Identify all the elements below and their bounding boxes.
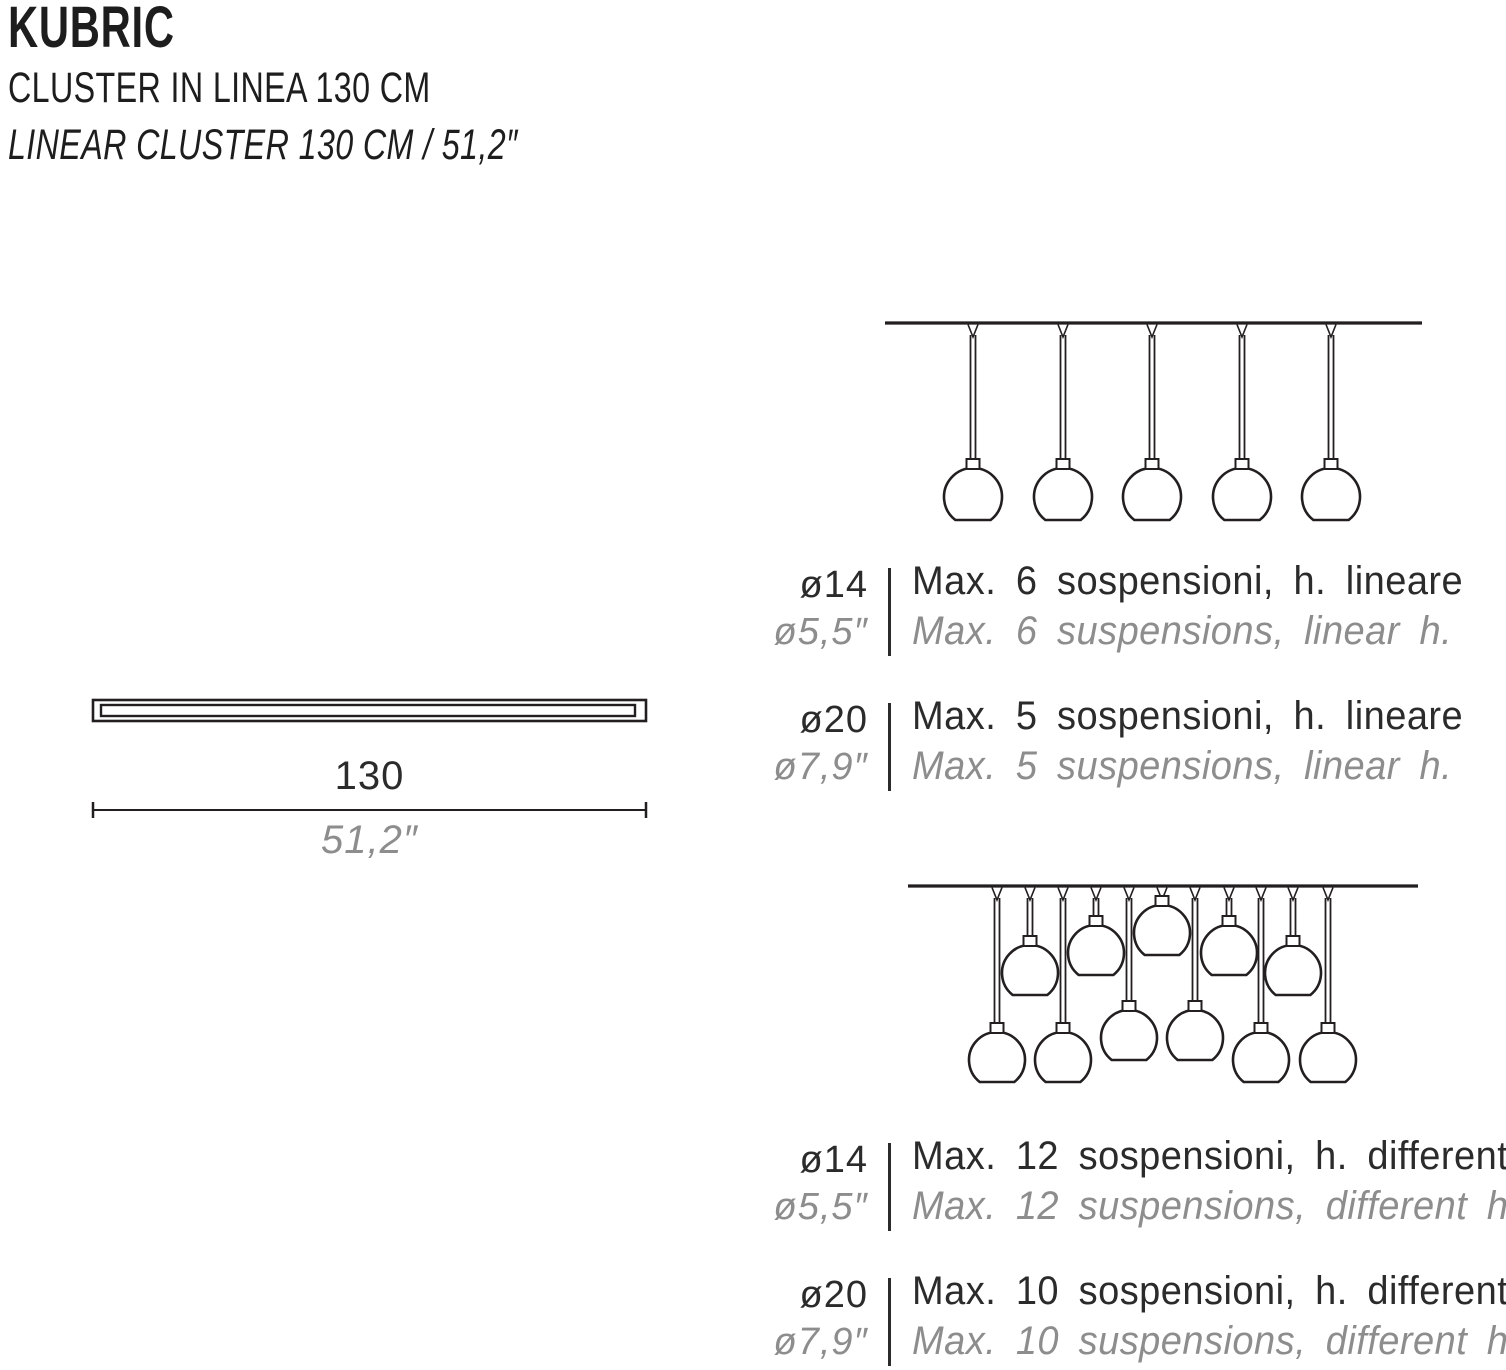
pendant-cap-linear	[1146, 459, 1159, 469]
spec-row-different-o14: ø14 ø5,5″ Max. 12 sospensioni, h. differ…	[770, 1137, 1504, 1237]
pendant-globe-different	[1068, 925, 1124, 975]
pendant-cap-different	[1057, 1023, 1070, 1033]
pendant-hook-different	[1190, 888, 1200, 901]
pendant-cap-linear	[1325, 459, 1338, 469]
diameter-label: ø14 ø5,5″	[770, 1137, 868, 1231]
pendant-globe-different	[1201, 925, 1257, 975]
pendant-cap-different	[1255, 1023, 1268, 1033]
pendant-globe-linear	[1213, 468, 1271, 520]
pendant-hook-different	[1224, 888, 1234, 901]
spec-line-english: Max. 10 suspensions, different h.	[912, 1316, 1506, 1366]
pendant-globe-different	[1233, 1032, 1289, 1082]
vertical-divider	[888, 1143, 891, 1231]
subtitle-english: LINEAR CLUSTER 130 CM / 51,2″	[8, 121, 518, 170]
spec-text: Max. 12 sospensioni, h. differenti Max. …	[912, 1131, 1506, 1231]
spec-line-english: Max. 6 suspensions, linear h.	[912, 606, 1463, 656]
pendant-hook-different	[1025, 888, 1035, 901]
pendant-hook-linear	[1147, 325, 1157, 338]
pendant-cap-different	[1189, 1001, 1202, 1011]
spec-line-english: Max. 12 suspensions, different h.	[912, 1181, 1506, 1231]
pendant-globe-different	[1265, 945, 1321, 995]
spec-text: Max. 5 sospensioni, h. lineare Max. 5 su…	[912, 691, 1463, 791]
vertical-divider	[888, 1278, 891, 1366]
vertical-divider	[888, 703, 891, 791]
diameter-cm: ø14	[770, 562, 868, 609]
page-title: KUBRIC	[8, 0, 175, 61]
pendant-globe-different	[1101, 1010, 1157, 1060]
diameter-inches: ø7,9″	[770, 1319, 868, 1366]
pendant-cap-linear	[1057, 459, 1070, 469]
pendant-hook-different	[1288, 888, 1298, 901]
pendant-hook-linear	[1326, 325, 1336, 338]
pendant-cap-different	[1024, 936, 1037, 946]
pendant-globe-linear	[1123, 468, 1181, 520]
spec-text: Max. 6 sospensioni, h. lineare Max. 6 su…	[912, 556, 1463, 656]
pendant-cap-different	[1287, 936, 1300, 946]
pendant-cap-different	[1156, 896, 1169, 906]
pendant-globe-different	[1134, 905, 1190, 955]
diameter-inches: ø5,5″	[770, 1184, 868, 1231]
pendant-cap-linear	[967, 459, 980, 469]
pendant-cap-linear	[1236, 459, 1249, 469]
pendant-cap-different	[991, 1023, 1004, 1033]
pendant-hook-different	[1124, 888, 1134, 901]
pendant-globe-different	[1300, 1032, 1356, 1082]
pendant-cap-different	[1223, 916, 1236, 926]
pendant-hook-different	[1256, 888, 1266, 901]
diameter-cm: ø14	[770, 1137, 868, 1184]
track-bar-inner	[101, 705, 635, 716]
spec-text: Max. 10 sospensioni, h. differenti Max. …	[912, 1266, 1506, 1366]
spec-line-english: Max. 5 suspensions, linear h.	[912, 741, 1463, 791]
pendant-hook-different	[1058, 888, 1068, 901]
spec-row-linear-o14: ø14 ø5,5″ Max. 6 sospensioni, h. lineare…	[770, 562, 1504, 662]
spec-row-different-o20: ø20 ø7,9″ Max. 10 sospensioni, h. differ…	[770, 1272, 1504, 1370]
spec-line-italian: Max. 12 sospensioni, h. differenti	[912, 1131, 1506, 1181]
diameter-inches: ø5,5″	[770, 609, 868, 656]
pendant-globe-linear	[944, 468, 1002, 520]
diameter-label: ø20 ø7,9″	[770, 1272, 868, 1366]
diameter-cm: ø20	[770, 1272, 868, 1319]
pendant-cap-different	[1090, 916, 1103, 926]
spec-line-italian: Max. 10 sospensioni, h. differenti	[912, 1266, 1506, 1316]
spec-row-linear-o20: ø20 ø7,9″ Max. 5 sospensioni, h. lineare…	[770, 697, 1504, 797]
pendant-hook-linear	[1058, 325, 1068, 338]
pendant-hook-different	[992, 888, 1002, 901]
pendant-globe-different	[1167, 1010, 1223, 1060]
diameter-label: ø14 ø5,5″	[770, 562, 868, 656]
pendant-cap-different	[1123, 1001, 1136, 1011]
spec-line-italian: Max. 5 sospensioni, h. lineare	[912, 691, 1463, 741]
spec-sheet-page: KUBRIC CLUSTER IN LINEA 130 CM LINEAR CL…	[0, 0, 1506, 1370]
pendant-globe-different	[1035, 1032, 1091, 1082]
vertical-divider	[888, 568, 891, 656]
pendant-globe-linear	[1034, 468, 1092, 520]
pendant-globe-linear	[1302, 468, 1360, 520]
diameter-label: ø20 ø7,9″	[770, 697, 868, 791]
pendant-hook-linear	[1237, 325, 1247, 338]
subtitle-italian: CLUSTER IN LINEA 130 CM	[8, 64, 431, 113]
pendant-hook-different	[1323, 888, 1333, 901]
spec-line-italian: Max. 6 sospensioni, h. lineare	[912, 556, 1463, 606]
diameter-cm: ø20	[770, 697, 868, 744]
dimension-label-inches: 51,2″	[93, 818, 646, 863]
dimension-label-cm: 130	[93, 754, 646, 799]
pendant-cap-different	[1322, 1023, 1335, 1033]
diameter-inches: ø7,9″	[770, 744, 868, 791]
pendant-hook-different	[1091, 888, 1101, 901]
pendant-globe-different	[1002, 945, 1058, 995]
pendant-globe-different	[969, 1032, 1025, 1082]
pendant-hook-linear	[968, 325, 978, 338]
